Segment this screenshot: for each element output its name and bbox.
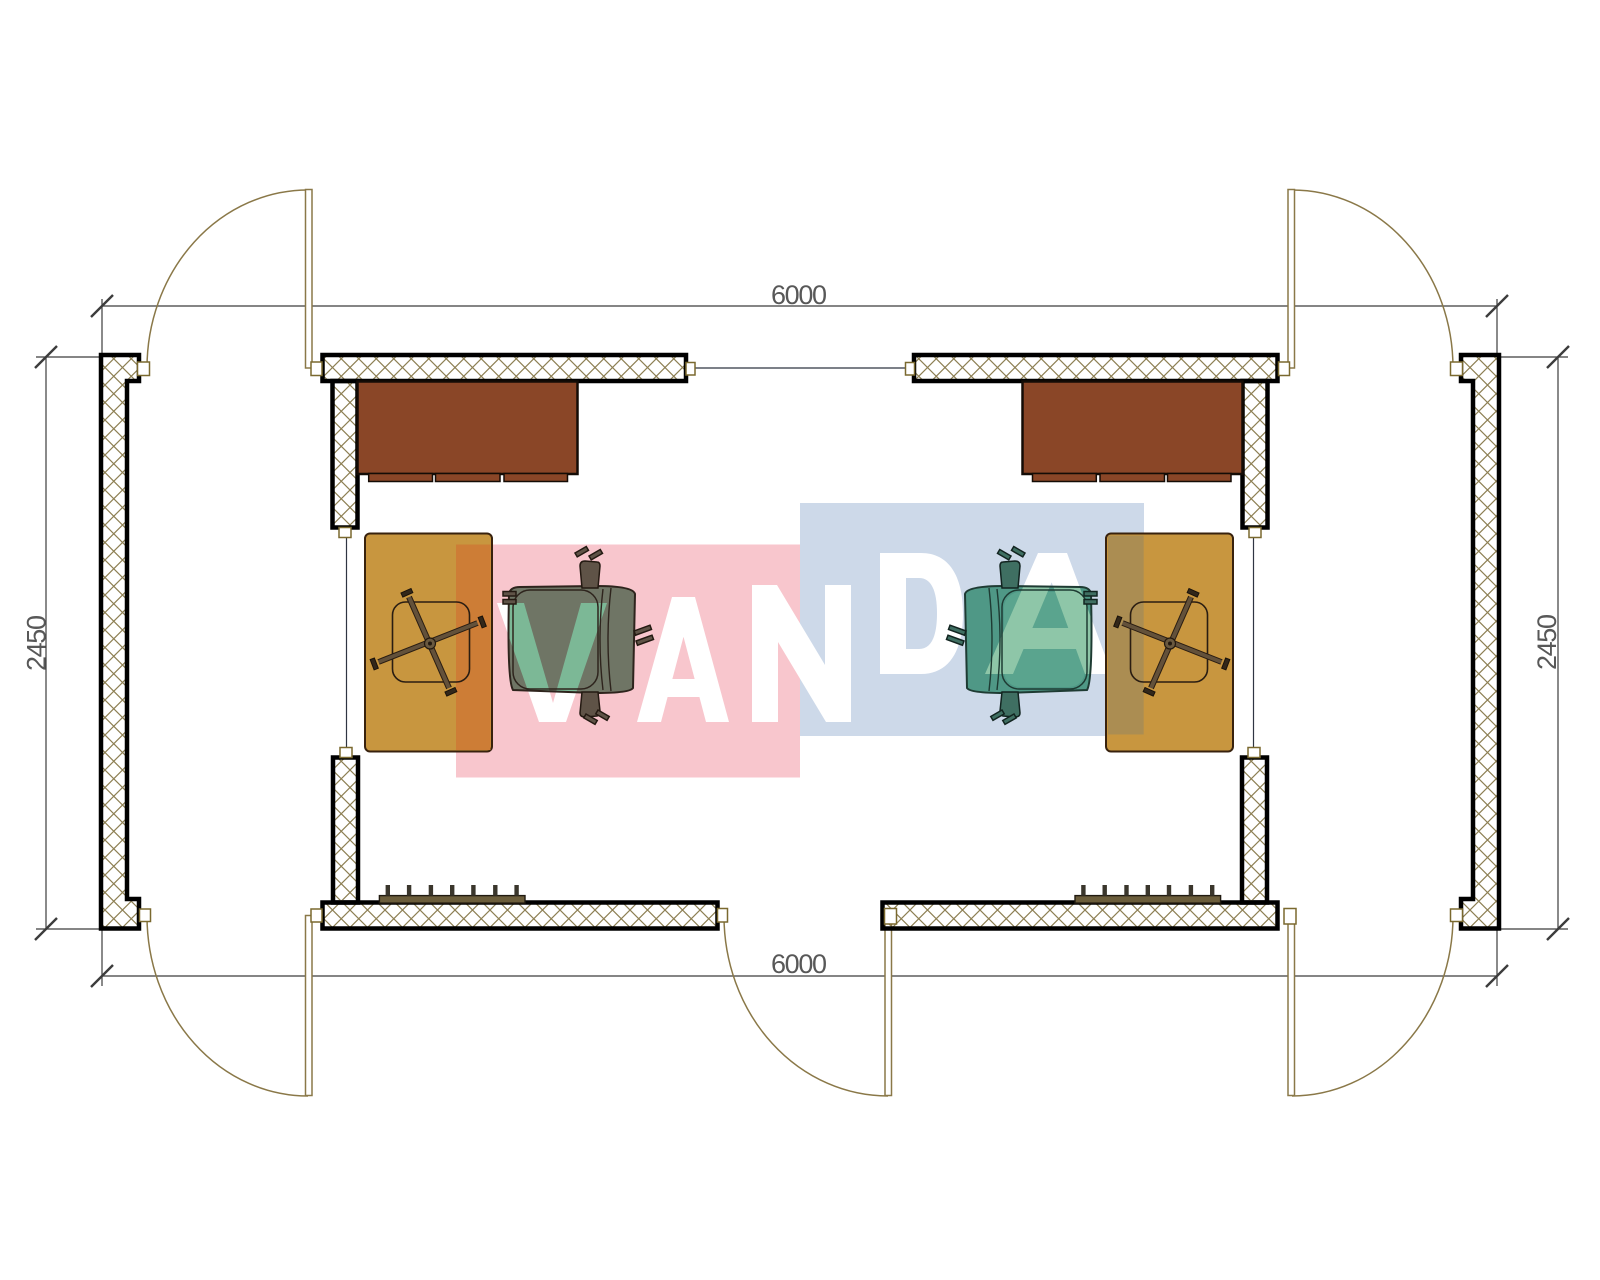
svg-text:6000: 6000 [771, 949, 827, 979]
svg-text:2450: 2450 [22, 615, 52, 671]
svg-text:2450: 2450 [1532, 614, 1562, 670]
svg-text:6000: 6000 [771, 280, 827, 310]
